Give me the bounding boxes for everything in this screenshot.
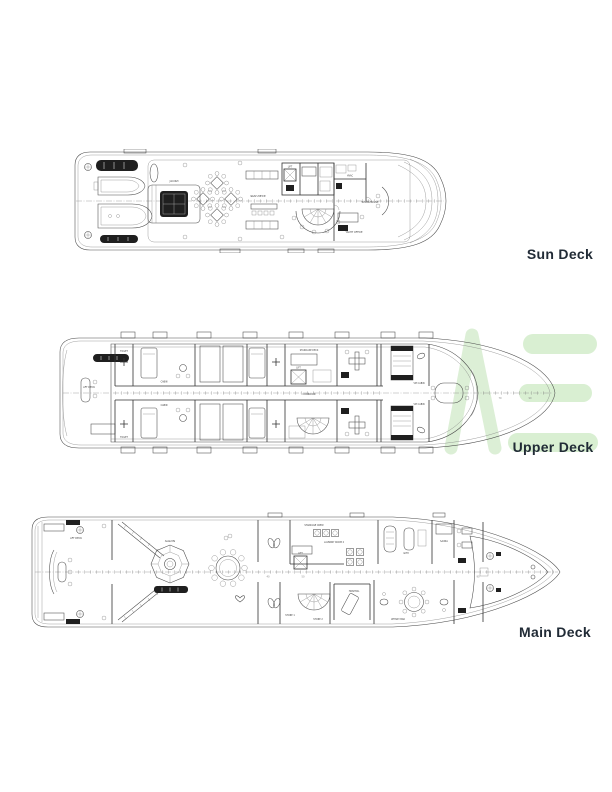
staircase-label: STAIRCASE DECK xyxy=(300,349,319,352)
toilet-label: TOILET xyxy=(120,350,128,353)
sun-deck-label: Sun Deck xyxy=(505,246,612,262)
station-number: 90 xyxy=(476,576,480,579)
hvac-label: HVAC xyxy=(347,175,353,178)
sun-deck-plan: JACUZZI SUN DECK LIFT xyxy=(70,149,448,253)
page: JACUZZI SUN DECK LIFT xyxy=(0,0,612,792)
upper-deck-label: Upper Deck xyxy=(498,439,608,455)
upper-deck-plan: 70 90 AFT DECK TOILET TOILET CABIN CABIN xyxy=(47,330,558,455)
gym-sauna: GYM SAUNA xyxy=(378,520,454,564)
wheelhouse-label: WHEELHOUSE xyxy=(362,201,379,204)
toilet-label: TOILET xyxy=(120,436,128,439)
station-number: 50 xyxy=(301,576,305,579)
whisky-bar-label: WHISKY BAR xyxy=(391,618,405,621)
jacuzzi-label: JACUZZI xyxy=(169,180,179,183)
vip-cabin-label: VIP CABIN xyxy=(414,382,425,385)
gym-label: GYM xyxy=(403,552,408,555)
salon-label: SALON xyxy=(165,539,176,543)
station-number: 40 xyxy=(266,576,270,579)
aft-deck-label: AFT DECK xyxy=(83,386,95,389)
sun-deck-area-label: SUN DECK xyxy=(250,194,267,198)
dining-table xyxy=(209,550,248,587)
bar-counter xyxy=(251,204,277,215)
aft-deck-label: AFT DECK xyxy=(70,537,82,540)
laundry-label: LAUNDRY ROOM 2 xyxy=(324,541,345,544)
cabin-label: CABIN xyxy=(161,404,168,407)
jacuzzi: JACUZZI xyxy=(148,180,200,223)
centerline: 40 50 90 xyxy=(35,572,558,579)
funnel-lift-block: LIFT xyxy=(282,163,334,195)
station-number: 90 xyxy=(528,397,532,400)
sauna-label: SAUNA xyxy=(440,540,448,543)
main-deck-label: Main Deck xyxy=(500,624,610,640)
hull-outline xyxy=(32,513,560,627)
staircase-crew-label: STAIRCASE CREW xyxy=(304,524,324,527)
lift-label: LIFT xyxy=(296,367,301,370)
main-deck-plan: 40 50 90 AFT DECK SA xyxy=(18,512,563,632)
store2-label: STORE 2 xyxy=(313,618,323,621)
yacht-office-label: YACHT OFFICE xyxy=(345,231,363,234)
cabin-label: CABIN xyxy=(161,381,168,384)
corridor-label: CORRIDOR xyxy=(303,393,316,396)
lift-label: LIFT xyxy=(288,166,293,169)
lift-label: LIFT xyxy=(298,552,303,555)
whisky-bar: WHISKY BAR xyxy=(374,580,454,624)
station-number: 70 xyxy=(498,397,502,400)
store1-label: STORE 1 xyxy=(285,614,295,617)
hospital-label: HOSPITAL xyxy=(349,590,360,593)
tender-boats xyxy=(85,160,159,243)
vip-cabin-label: VIP CABIN xyxy=(414,403,425,406)
spiral-staircase xyxy=(292,209,340,234)
aft-deck: AFT DECK xyxy=(81,354,129,434)
hospital: HOSPITAL xyxy=(334,584,370,620)
